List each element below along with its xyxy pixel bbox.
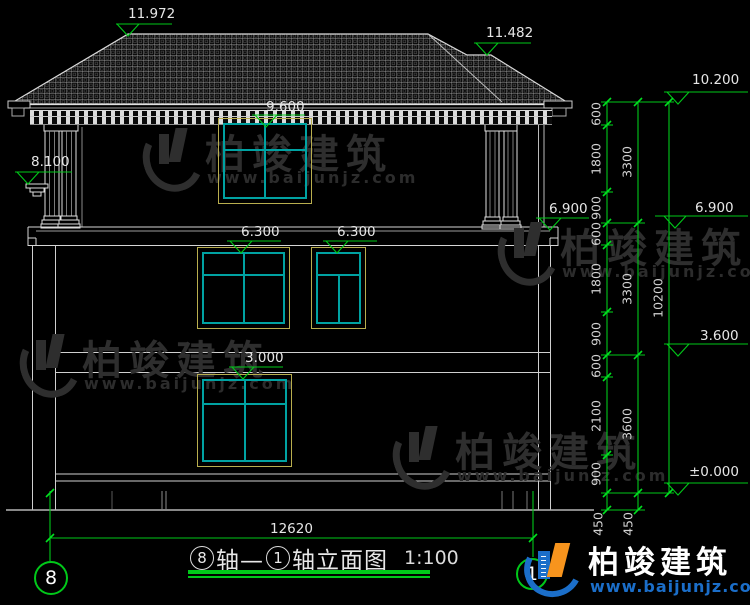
elevation-label: 11.482 bbox=[486, 25, 533, 41]
elevation-label: 6.900 bbox=[549, 201, 588, 217]
dim-label: 1800 bbox=[589, 263, 604, 295]
dim-label: 3300 bbox=[620, 146, 635, 178]
dim-label: 2100 bbox=[589, 400, 604, 432]
elevation-drawing-canvas: 柏竣建筑 www.baijunjz.com 柏竣建筑 www.baijunjz.… bbox=[0, 0, 750, 605]
title-scale: 1:100 bbox=[404, 547, 459, 569]
dim-label: 600 bbox=[589, 102, 604, 126]
dim-label: 900 bbox=[589, 462, 604, 486]
elevation-label: 6.300 bbox=[337, 224, 376, 240]
dim-label: 3300 bbox=[620, 273, 635, 305]
title-underline bbox=[188, 576, 430, 578]
dimension-ticks bbox=[46, 98, 673, 542]
elevation-label: 3.000 bbox=[245, 350, 284, 366]
dim-label: 450 bbox=[591, 512, 606, 536]
brand-logo: 柏竣建筑 www.baijunjz.com bbox=[524, 537, 750, 603]
dim-label: 900 bbox=[589, 196, 604, 220]
dim-label: 3600 bbox=[620, 408, 635, 440]
elevation-label: 3.600 bbox=[700, 328, 739, 344]
brand-url: www.baijunjz.com bbox=[590, 577, 750, 596]
dim-label: 600 bbox=[589, 222, 604, 246]
dim-label: 900 bbox=[589, 322, 604, 346]
dimension-linework bbox=[0, 0, 750, 605]
elevation-label: 8.100 bbox=[31, 154, 70, 170]
elevation-label: 10.200 bbox=[692, 72, 739, 88]
dim-label: 450 bbox=[621, 512, 636, 536]
dim-label: 600 bbox=[589, 354, 604, 378]
elevation-label: 6.900 bbox=[695, 200, 734, 216]
elevation-label: 9.600 bbox=[266, 99, 305, 115]
elevation-label: ±0.000 bbox=[689, 464, 739, 480]
title-underline bbox=[188, 570, 430, 574]
dim-label-total-width: 12620 bbox=[270, 521, 313, 537]
dim-label-total-height: 10200 bbox=[651, 278, 666, 318]
title-axis-end: 1 bbox=[266, 546, 290, 570]
elevation-label: 6.300 bbox=[241, 224, 280, 240]
elevation-label: 11.972 bbox=[128, 6, 175, 22]
dim-label: 1800 bbox=[589, 143, 604, 175]
brand-name: 柏竣建筑 bbox=[588, 537, 732, 582]
title-axis-start: 8 bbox=[190, 546, 214, 570]
